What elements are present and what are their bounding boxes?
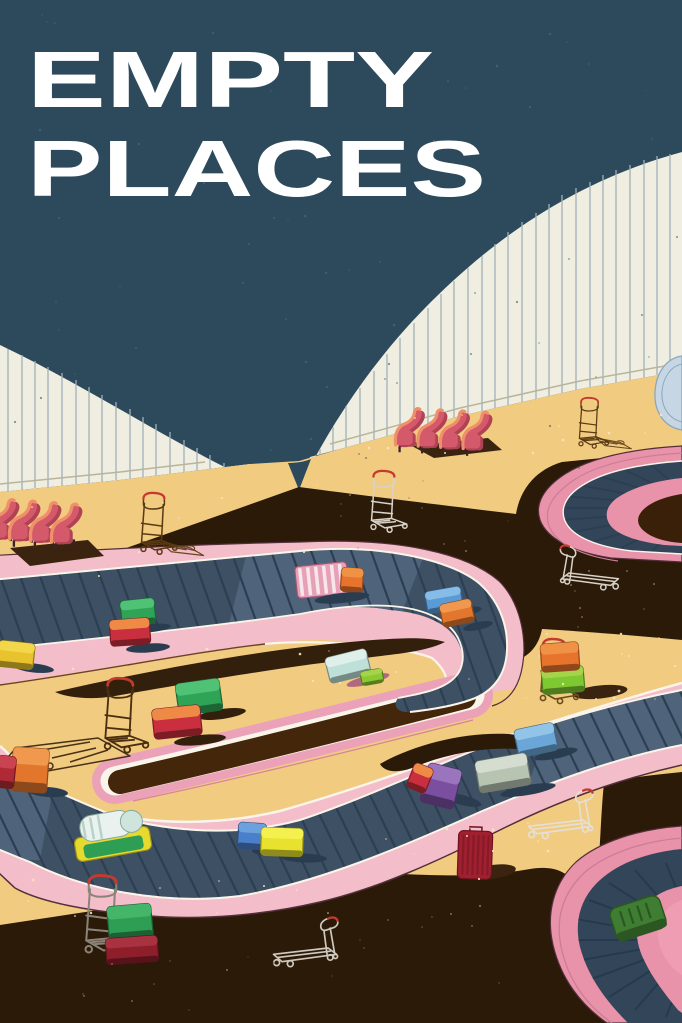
svg-text:EMPTY: EMPTY — [27, 35, 434, 124]
svg-text:PLACES: PLACES — [27, 124, 486, 213]
